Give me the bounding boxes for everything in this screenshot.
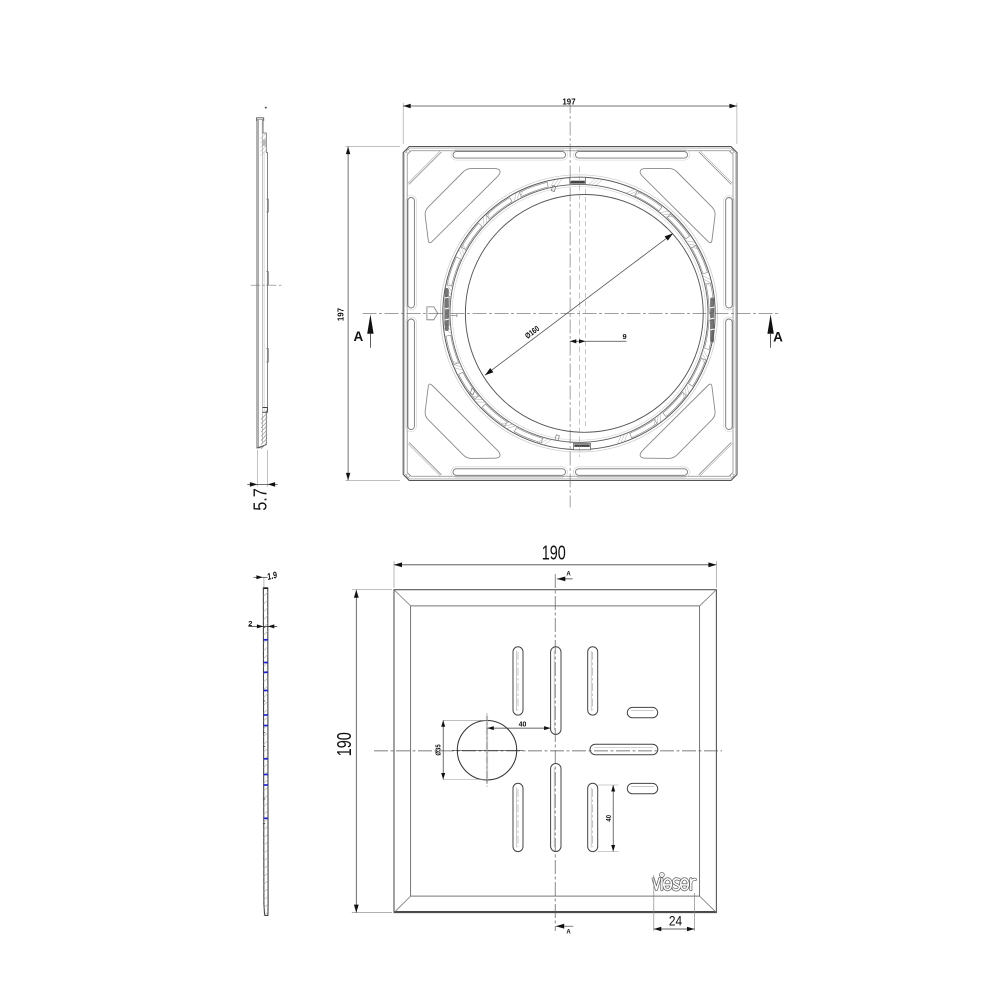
svg-text:A: A	[566, 571, 571, 577]
svg-text:197: 197	[336, 308, 345, 322]
svg-text:Ø35: Ø35	[435, 744, 443, 756]
svg-text:190: 190	[542, 541, 566, 564]
svg-text:2: 2	[248, 619, 252, 628]
svg-text:A: A	[773, 330, 783, 345]
svg-text:190: 190	[332, 732, 355, 756]
svg-text:197: 197	[562, 97, 576, 106]
svg-text:A: A	[354, 329, 364, 344]
svg-text:A: A	[566, 930, 571, 936]
svg-text:24: 24	[669, 913, 682, 929]
svg-text:40: 40	[519, 721, 527, 728]
svg-text:9: 9	[623, 332, 627, 341]
svg-text:5.7: 5.7	[250, 488, 271, 511]
svg-text:40: 40	[605, 815, 613, 822]
